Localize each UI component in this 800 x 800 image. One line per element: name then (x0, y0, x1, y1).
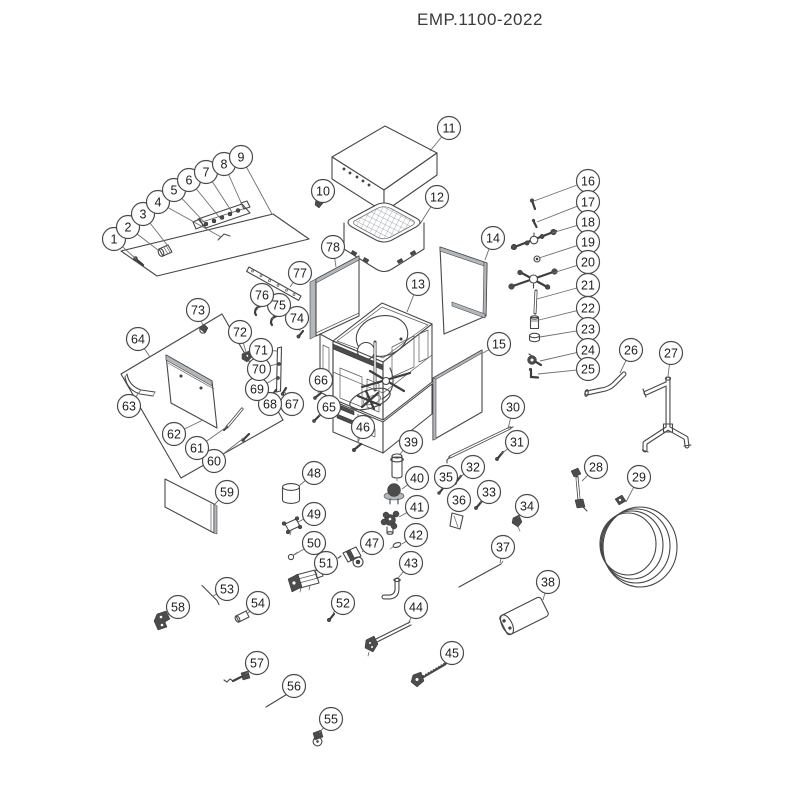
callout-number-13: 13 (411, 277, 425, 291)
callout-number-42: 42 (409, 528, 423, 542)
leader-line-50 (294, 549, 304, 555)
callout-number-26: 26 (624, 343, 638, 357)
leader-line-48 (299, 481, 305, 487)
part-shaft-21 (535, 291, 536, 313)
leader-line-24 (540, 353, 577, 361)
leader-line-11 (430, 137, 442, 151)
part-elbow-hose-43 (384, 579, 400, 598)
callout-number-17: 17 (581, 195, 595, 209)
part-rear-panel-15 (433, 350, 482, 440)
callout-number-67: 67 (285, 397, 299, 411)
part-bracket-58 (154, 611, 170, 630)
part-handle-63 (125, 374, 155, 396)
part-screw-74 (297, 331, 303, 338)
leader-line-40 (402, 485, 408, 489)
leader-line-27 (668, 364, 670, 376)
part-nut-23 (530, 333, 540, 341)
callout-number-33: 33 (482, 485, 496, 499)
callout-number-56: 56 (287, 679, 301, 693)
callout-number-12: 12 (430, 190, 444, 204)
leader-line-7 (212, 182, 232, 212)
part-bushing-22 (531, 316, 539, 329)
leader-line-21 (537, 288, 577, 299)
part-top-lid-11 (332, 126, 437, 212)
callout-number-69: 69 (250, 382, 264, 396)
callout-number-31: 31 (510, 435, 524, 449)
part-inlet-hose-28 (571, 468, 587, 511)
leader-line-64 (144, 349, 150, 357)
part-coiled-hose-29 (600, 495, 677, 587)
callout-number-62: 62 (167, 427, 181, 441)
callout-number-41: 41 (410, 500, 424, 514)
leader-line-5 (182, 198, 205, 223)
callout-number-66: 66 (314, 373, 328, 387)
leader-line-37 (500, 558, 501, 563)
part-roller-38 (498, 596, 549, 636)
part-screw-65 (312, 415, 320, 423)
part-caster-55 (313, 730, 323, 746)
part-rod-37 (459, 561, 503, 587)
part-valve-49 (282, 517, 302, 535)
part-stand-frame-27 (643, 377, 692, 452)
part-bracket-36 (450, 513, 463, 529)
callout-number-18: 18 (581, 215, 595, 229)
leader-line-13 (407, 295, 414, 312)
callout-number-21: 21 (581, 278, 595, 292)
callout-number-6: 6 (186, 173, 193, 187)
callout-number-47: 47 (365, 536, 379, 550)
callout-number-22: 22 (581, 301, 595, 315)
part-threaded-rod-45 (411, 664, 445, 688)
callout-number-73: 73 (191, 303, 205, 317)
part-rear-panel-14 (440, 247, 487, 334)
callout-number-14: 14 (486, 231, 500, 245)
leader-line-60 (223, 437, 245, 454)
callout-number-19: 19 (581, 235, 595, 249)
part-fitting-24 (528, 354, 541, 365)
part-screw-16 (530, 199, 535, 209)
part-bolt-57 (224, 671, 250, 682)
callout-number-57: 57 (250, 656, 264, 670)
callout-number-72: 72 (233, 325, 247, 339)
callout-number-64: 64 (131, 332, 145, 346)
callout-number-77: 77 (293, 266, 307, 280)
callout-number-27: 27 (664, 346, 678, 360)
part-pin-17 (532, 219, 536, 227)
part-seal-42 (390, 542, 402, 549)
callout-number-43: 43 (404, 556, 418, 570)
part-lower-wash-arm-20 (509, 269, 558, 290)
leader-line-16 (534, 185, 577, 201)
part-hook-75 (271, 316, 277, 325)
callout-number-3: 3 (140, 207, 147, 221)
callout-number-52: 52 (336, 596, 350, 610)
callout-number-76: 76 (255, 288, 269, 302)
callout-number-46: 46 (356, 420, 370, 434)
leader-line-20 (553, 265, 577, 273)
part-elbow-25 (529, 368, 538, 377)
callout-number-5: 5 (171, 183, 178, 197)
callout-number-70: 70 (252, 362, 266, 376)
callout-number-10: 10 (316, 184, 330, 198)
part-nut-19 (534, 256, 540, 262)
callout-number-53: 53 (220, 582, 234, 596)
callout-number-1: 1 (111, 232, 118, 246)
leader-line-78 (335, 258, 336, 267)
callout-number-39: 39 (404, 435, 418, 449)
callout-number-50: 50 (307, 536, 321, 550)
callout-number-29: 29 (632, 470, 646, 484)
callout-number-55: 55 (324, 712, 338, 726)
callout-number-35: 35 (439, 470, 453, 484)
part-motor-51 (288, 569, 323, 592)
leader-line-18 (552, 225, 577, 233)
part-slide-rod-67-71 (273, 347, 286, 396)
part-pump-47 (338, 547, 363, 567)
part-bracket-34 (512, 515, 522, 531)
callout-number-25: 25 (581, 362, 595, 376)
callout-number-23: 23 (581, 322, 595, 336)
callout-number-40: 40 (410, 471, 424, 485)
leader-line-25 (538, 370, 577, 374)
callout-number-34: 34 (520, 499, 534, 513)
callout-number-15: 15 (492, 337, 506, 351)
callout-number-60: 60 (207, 454, 221, 468)
leader-line-63 (136, 390, 141, 397)
callout-number-30: 30 (506, 400, 520, 414)
part-panel-59 (165, 479, 217, 534)
leader-line-42 (402, 541, 406, 544)
callout-number-75: 75 (272, 298, 286, 312)
callout-number-44: 44 (409, 600, 423, 614)
leader-line-2 (137, 234, 158, 250)
callout-number-68: 68 (263, 397, 277, 411)
leader-line-23 (540, 331, 577, 337)
leader-line-6 (196, 189, 220, 218)
callout-number-54: 54 (251, 596, 265, 610)
callout-number-49: 49 (307, 507, 321, 521)
part-upper-wash-arm-18 (511, 229, 556, 250)
callout-number-2: 2 (125, 220, 132, 234)
leader-line-59 (215, 500, 219, 504)
part-drain-fitting-40 (384, 484, 404, 505)
leader-line-53 (213, 594, 217, 596)
part-overflow-tube-39 (391, 454, 404, 481)
leader-line-77 (290, 282, 293, 287)
part-impeller-41 (381, 511, 399, 534)
parts-diagram: 1234567891011121314151617181920212223242… (0, 0, 800, 800)
callout-number-51: 51 (319, 556, 333, 570)
callout-number-45: 45 (445, 646, 459, 660)
exploded-parts-page: EMP.1100-2022 (0, 0, 800, 800)
callout-number-71: 71 (254, 343, 268, 357)
callout-number-61: 61 (190, 441, 204, 455)
callout-number-7: 7 (203, 165, 210, 179)
callout-number-16: 16 (581, 174, 595, 188)
part-screw-52 (327, 614, 334, 622)
callout-number-32: 32 (466, 460, 480, 474)
callout-number-63: 63 (122, 399, 136, 413)
callout-number-24: 24 (581, 343, 595, 357)
leader-line-31 (501, 449, 508, 454)
callout-number-11: 11 (443, 121, 456, 135)
callout-number-59: 59 (220, 485, 234, 499)
leader-line-26 (620, 360, 626, 373)
part-cup-48 (283, 484, 300, 504)
callout-number-65: 65 (322, 400, 336, 414)
callout-number-36: 36 (452, 493, 466, 507)
leader-line-44 (408, 617, 411, 624)
callout-number-9: 9 (238, 150, 245, 164)
callout-number-58: 58 (171, 600, 185, 614)
part-door-62 (166, 355, 217, 428)
leader-line-69 (267, 378, 276, 383)
callout-number-28: 28 (589, 460, 603, 474)
leader-line-19 (539, 246, 577, 258)
leader-line-8 (229, 175, 243, 208)
callout-number-37: 37 (496, 540, 510, 554)
leader-line-43 (398, 572, 404, 578)
callout-number-4: 4 (155, 195, 162, 209)
leader-line-28 (582, 475, 588, 481)
leader-line-62 (184, 420, 203, 429)
leader-line-70 (270, 364, 277, 366)
leader-line-22 (539, 311, 577, 320)
leader-line-38 (543, 593, 545, 600)
leader-line-29 (626, 487, 634, 502)
part-screw-46 (352, 444, 361, 452)
leader-line-3 (150, 223, 168, 246)
callout-number-8: 8 (221, 157, 228, 171)
part-fork-rod-44 (365, 622, 411, 656)
leader-line-15 (483, 350, 489, 353)
callout-number-74: 74 (290, 311, 304, 325)
leader-line-14 (485, 249, 489, 260)
callout-number-38: 38 (541, 575, 555, 589)
leader-line-17 (537, 206, 577, 222)
leader-line-41 (399, 513, 407, 517)
callout-number-78: 78 (326, 240, 340, 254)
callout-number-48: 48 (307, 466, 321, 480)
leader-line-12 (420, 207, 431, 224)
callout-number-20: 20 (581, 255, 595, 269)
part-screw-66 (313, 393, 321, 400)
